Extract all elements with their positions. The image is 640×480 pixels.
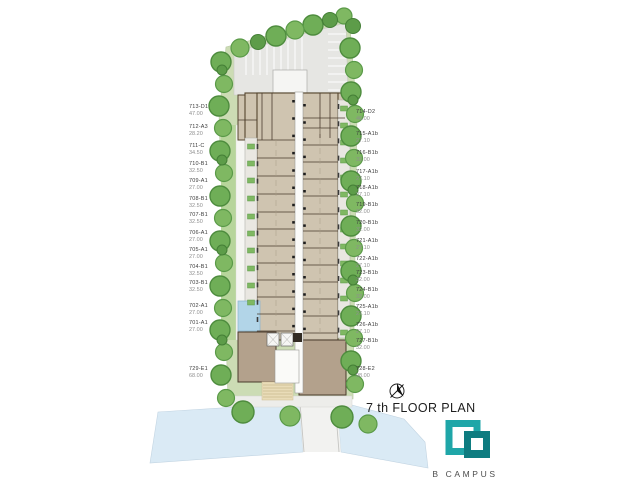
unit-label: 717-A1b 27.10	[356, 169, 392, 182]
north-arrow-icon	[390, 383, 404, 398]
unit-area: 27.00	[189, 327, 225, 334]
unit-label: 712-A3 28.20	[189, 124, 225, 137]
unit-label: 705-A1 27.00	[189, 247, 225, 260]
unit-label: 711-C 34.50	[189, 143, 225, 156]
unit-label: 701-A1 27.00	[189, 320, 225, 333]
building-footprint	[238, 70, 350, 400]
unit-area: 32.50	[189, 203, 225, 210]
unit-area: 32.50	[189, 271, 225, 278]
unit-area: 32.50	[189, 219, 225, 226]
unit-label: 723-B1b 32.00	[356, 270, 392, 283]
central-corridor	[295, 92, 303, 393]
unit-area: 32.50	[189, 287, 225, 294]
unit-area: 27.10	[356, 263, 392, 270]
unit-label: 721-A1b 27.10	[356, 238, 392, 251]
unit-label: 715-A1b 27.10	[356, 131, 392, 144]
unit-label: 720-B1b 32.00	[356, 220, 392, 233]
unit-label: 716-B1b 32.00	[356, 150, 392, 163]
unit-728	[299, 340, 346, 395]
unit-area: 32.00	[356, 294, 392, 301]
lobby	[275, 350, 299, 383]
unit-area: 32.00	[356, 209, 392, 216]
unit-label: 722-A1b 27.10	[356, 256, 392, 269]
site-plan-drawing	[0, 0, 640, 480]
b-campus-logo: B CAMPUS	[428, 419, 502, 479]
unit-area: 27.10	[356, 311, 392, 318]
floor-plan-page: 713-D1 47.00 712-A3 28.20 711-C 34.50 71…	[0, 0, 640, 480]
unit-area: 32.50	[189, 168, 225, 175]
unit-area: 32.00	[356, 277, 392, 284]
unit-label: 709-A1 27.00	[189, 178, 225, 191]
unit-label: 729-E1 68.00	[189, 366, 225, 379]
unit-label: 724-B1b 32.00	[356, 287, 392, 300]
unit-label: 718-A1b 27.10	[356, 185, 392, 198]
unit-label: 702-A1 27.00	[189, 303, 225, 316]
unit-area: 27.00	[189, 254, 225, 261]
unit-label: 727-B1b 32.00	[356, 338, 392, 351]
unit-area: 27.10	[356, 329, 392, 336]
unit-area: 27.10	[356, 176, 392, 183]
unit-area: 32.00	[356, 157, 392, 164]
unit-area: 27.00	[189, 185, 225, 192]
b-campus-logo-mark	[438, 419, 492, 463]
unit-area: 47.00	[189, 111, 225, 118]
unit-label: 726-A1b 27.10	[356, 322, 392, 335]
unit-area: 32.00	[356, 227, 392, 234]
unit-label: 713-D1 47.00	[189, 104, 225, 117]
unit-area: 34.50	[189, 150, 225, 157]
unit-area: 32.00	[356, 345, 392, 352]
unit-label: 728-E2 98.00	[356, 366, 392, 379]
unit-label: 714-D2 46.00	[356, 109, 392, 122]
unit-area: 28.20	[189, 131, 225, 138]
unit-area: 46.00	[356, 116, 392, 123]
unit-area: 27.00	[189, 237, 225, 244]
unit-area: 27.10	[356, 138, 392, 145]
unit-label: 703-B1 32.50	[189, 280, 225, 293]
unit-area: 27.10	[356, 245, 392, 252]
pool	[238, 301, 260, 331]
unit-label: 719-B1b 32.00	[356, 202, 392, 215]
unit-area: 27.00	[189, 310, 225, 317]
unit-area: 68.00	[189, 373, 225, 380]
unit-label: 706-A1 27.00	[189, 230, 225, 243]
plan-title: 7 th FLOOR PLAN	[366, 401, 476, 415]
unit-label: 710-B1 32.50	[189, 161, 225, 174]
unit-area: 98.00	[356, 373, 392, 380]
unit-label: 725-A1b 27.10	[356, 304, 392, 317]
unit-label: 707-B1 32.50	[189, 212, 225, 225]
unit-label: 708-B1 32.50	[189, 196, 225, 209]
unit-label: 704-B1 32.50	[189, 264, 225, 277]
unit-area: 27.10	[356, 192, 392, 199]
b-campus-logo-text: B CAMPUS	[428, 469, 502, 479]
entrance-stairs	[262, 382, 293, 400]
